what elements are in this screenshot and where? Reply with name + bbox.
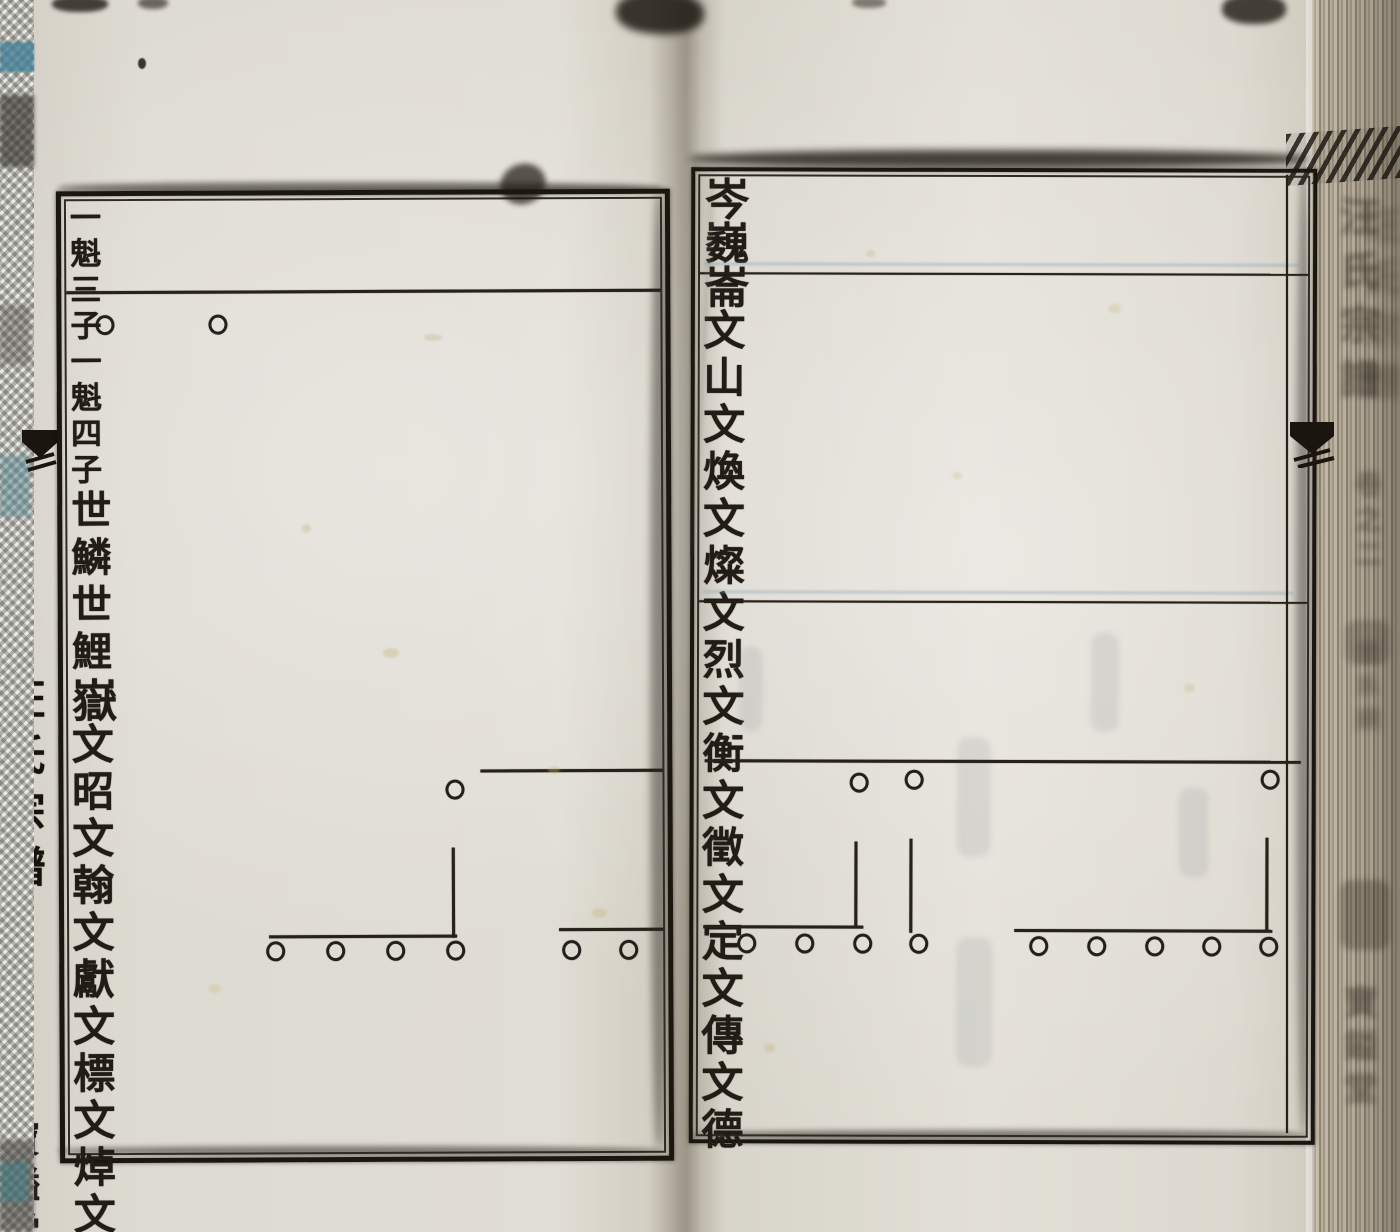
ink-smudge <box>52 0 108 12</box>
paper-stain <box>764 1044 775 1052</box>
lineage-circle <box>853 934 872 954</box>
section-rule <box>699 600 1307 604</box>
lineage-circle <box>850 773 869 793</box>
person-name: 文烈 <box>699 590 741 684</box>
paper-stain <box>592 908 607 918</box>
children-connector-line <box>703 925 863 928</box>
faint-blue-streak <box>704 262 1300 267</box>
person-name: 文翰 <box>69 816 111 910</box>
person-name: 文標 <box>69 1004 111 1098</box>
lineage-circle <box>445 780 464 800</box>
paper-stain <box>1108 304 1121 313</box>
ink-smudge <box>138 0 168 9</box>
lineage-circle <box>795 933 814 953</box>
paper-stain <box>548 766 560 774</box>
paper-stain <box>1184 684 1195 692</box>
ink-smudge <box>852 0 886 8</box>
paper-stain <box>383 648 399 658</box>
lineage-circle <box>1087 936 1106 956</box>
right-page-frame: 岑 巍 崙 文山 文煥 文燦 文烈 文衡 文 <box>689 167 1318 1145</box>
genealogy-book-scan: 汪氏宗譜 汪氏宗譜 卷之二 世系綱 寶鎰堂 汪氏宗譜 卷之二 圩股綱 十六 寶鎰… <box>0 0 1400 1232</box>
children-connector-line <box>269 935 457 939</box>
paper-stain <box>424 334 442 341</box>
descent-connector-line <box>452 848 455 938</box>
cloth-backing <box>0 0 34 1232</box>
descent-connector-line <box>854 842 857 927</box>
ink-smudge <box>1222 0 1286 24</box>
lineage-circle <box>386 941 405 961</box>
person-name: 文炳 <box>70 1192 112 1232</box>
ink-speck <box>138 58 146 69</box>
lineage-circle <box>446 941 465 961</box>
lineage-circle <box>905 770 924 790</box>
person-name: 文衡 <box>699 684 741 778</box>
lineage-circle <box>326 941 345 961</box>
person-name: 文焯 <box>70 1098 112 1192</box>
person-name: 文定 <box>698 872 740 966</box>
lineage-circle <box>1145 936 1164 956</box>
section-rule <box>700 272 1308 276</box>
ancestor-name: 嶽 <box>68 677 113 722</box>
header-father-name: 一魁 <box>67 345 98 417</box>
paper-stain <box>208 984 221 993</box>
fore-edge-ink-fragments <box>1340 880 1390 950</box>
left-page-content: 一魁 三子 一魁 四子 世鱗 世鯉 嶽 文昭 文翰 文獻 文標 <box>66 199 664 1154</box>
children-connector-line <box>1014 929 1272 933</box>
lineage-circle <box>1261 770 1280 790</box>
header-father-name: 一魁 <box>66 201 97 273</box>
person-name: 文徵 <box>698 778 740 872</box>
lineage-circle <box>737 933 756 953</box>
lineage-circle <box>1029 936 1048 956</box>
header-son-rank: 四子 <box>67 417 98 489</box>
header-son-rank: 三子 <box>66 273 97 345</box>
header-rule <box>66 289 660 295</box>
person-name: 文燦 <box>699 496 741 590</box>
person-name: 文傳 <box>698 966 740 1060</box>
lineage-circle <box>1202 937 1221 957</box>
ink-showthrough <box>1091 632 1119 732</box>
fishtail-mark-icon <box>22 428 58 472</box>
paper-stain <box>952 472 962 479</box>
person-name: 文昭 <box>68 722 110 816</box>
fore-edge-ghost-volume: 卷之二 <box>1352 470 1379 575</box>
ancestor-name: 岑 <box>700 176 744 220</box>
fishtail-mark-icon <box>1290 420 1336 468</box>
descent-connector-line <box>909 839 912 933</box>
lineage-circle <box>562 940 581 960</box>
ink-showthrough <box>956 737 990 857</box>
faint-blue-streak <box>703 590 1293 595</box>
spine-border-line <box>1286 175 1288 1133</box>
lineage-circle <box>95 315 114 335</box>
paper-stain <box>866 250 875 257</box>
person-name: 世鱗 <box>67 489 107 583</box>
lineage-circle <box>1259 937 1278 957</box>
ink-smudge <box>690 150 1308 168</box>
cloth-blue-patch <box>0 42 34 72</box>
lineage-circle <box>266 941 285 961</box>
cloth-gray-patch <box>0 305 30 365</box>
ink-showthrough <box>956 937 992 1067</box>
lineage-circle <box>909 934 928 954</box>
person-name: 世鯉 <box>68 583 108 677</box>
left-page-frame: 一魁 三子 一魁 四子 世鱗 世鯉 嶽 文昭 文翰 文獻 文標 <box>56 189 674 1164</box>
ink-showthrough <box>1178 787 1208 877</box>
ink-showthrough <box>739 646 763 731</box>
person-name: 文德 <box>698 1060 740 1154</box>
right-page-content: 岑 巍 崙 文山 文煥 文燦 文烈 文衡 文 <box>698 176 1309 1136</box>
fore-edge-ghost-hall: 寶鎰堂 <box>1342 985 1375 1114</box>
cloth-dark-patch <box>0 95 34 167</box>
sibling-connector-line <box>480 769 662 773</box>
cloth-blue-patch <box>0 1162 28 1202</box>
fore-edge-ink-fragments <box>1345 620 1390 665</box>
sibling-connector-line <box>705 759 1301 764</box>
person-name: 文獻 <box>69 910 111 1004</box>
fore-edge-ghost-title: 汪氏宗譜 <box>1360 206 1398 414</box>
children-connector-line <box>559 928 663 931</box>
paper-stain <box>302 524 311 533</box>
descent-connector-line <box>1265 838 1268 930</box>
person-name: 文煥 <box>699 402 741 496</box>
lineage-circle <box>208 315 227 335</box>
lineage-circle <box>619 940 638 960</box>
